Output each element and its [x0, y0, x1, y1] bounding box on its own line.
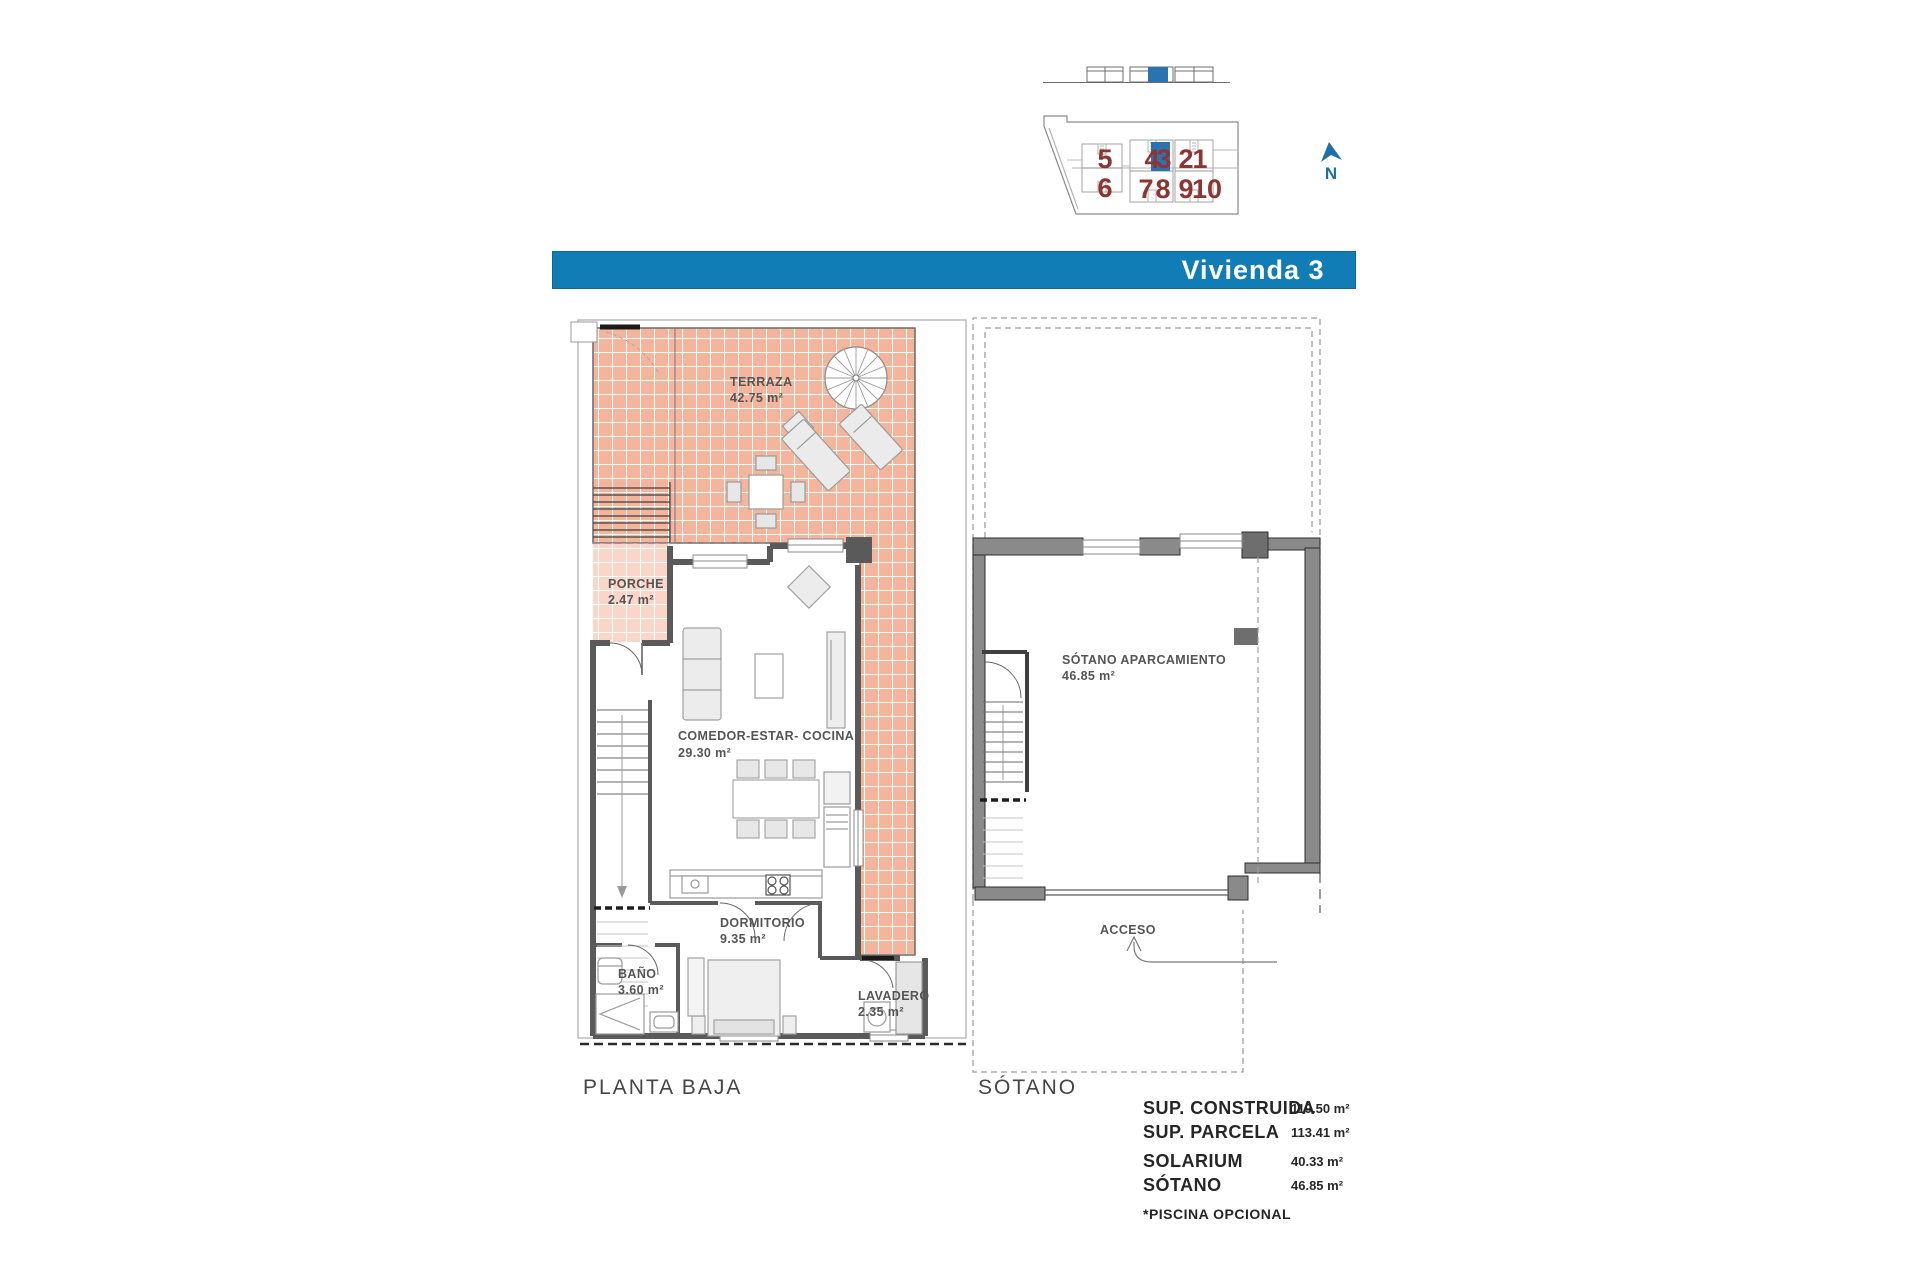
room-area-sotano-aparcamiento: 46.85 m²: [1062, 669, 1115, 683]
title-bar: Vivienda 3: [552, 251, 1356, 289]
room-area-dormitorio: 9.35 m²: [720, 932, 766, 946]
room-label-terraza: TERRAZA: [730, 375, 793, 389]
room-area-lavadero: 2.35 m²: [858, 1005, 904, 1019]
room-label-lavadero: LAVADERO: [858, 989, 930, 1003]
ground-floor-plan: TERRAZA 42.75 m² PORCHE 2.47 m² COMEDOR-…: [570, 310, 980, 1050]
site-plan: 5 6 4 3 2 1 7 8 9 10 N: [1030, 40, 1360, 220]
unit-number-5: 5: [1097, 144, 1112, 174]
floorplan-sheet: 5 6 4 3 2 1 7 8 9 10 N Vivienda 3: [0, 0, 1920, 1280]
north-arrow-icon: N: [1321, 142, 1342, 183]
garage-door: [1045, 890, 1228, 895]
access-arrow: [1127, 937, 1277, 962]
corner-pillar: [846, 537, 872, 563]
unit-number-2: 2: [1178, 144, 1193, 174]
access-label: ACCESO: [1100, 923, 1156, 937]
summary-row-sotano: SÓTANO 46.85 m²: [1143, 1175, 1463, 1197]
room-area-salon: 29.30 m²: [678, 746, 731, 760]
basement-plan: SÓTANO APARCAMIENTO 46.85 m² ACCESO: [960, 310, 1360, 1080]
room-label-porche: PORCHE: [608, 577, 664, 591]
summary-row-construida: SUP. CONSTRUIDA 119.50 m²: [1143, 1098, 1463, 1120]
unit-number-8: 8: [1155, 174, 1170, 204]
room-area-terraza: 42.75 m²: [730, 391, 783, 405]
basement-interior: [980, 550, 1313, 890]
room-label-salon: COMEDOR-ESTAR- COCINA: [678, 729, 854, 743]
spiral-staircase: [825, 347, 887, 409]
basement-pillar: [1234, 628, 1258, 645]
room-area-porche: 2.47 m²: [608, 593, 654, 607]
summary-value: 46.85 m²: [1291, 1178, 1343, 1193]
summary-value: 119.50 m²: [1291, 1101, 1350, 1116]
dining-set: [733, 760, 819, 838]
unit-number-6: 6: [1097, 173, 1112, 203]
summary-value: 40.33 m²: [1291, 1154, 1343, 1169]
summary-row-parcela: SUP. PARCELA 113.41 m²: [1143, 1122, 1463, 1144]
unit-number-3: 3: [1156, 144, 1171, 174]
elevation-highlight: [1148, 67, 1168, 82]
basement-caption: SÓTANO: [978, 1076, 1077, 1100]
room-label-sotano-aparcamiento: SÓTANO APARCAMIENTO: [1062, 652, 1226, 667]
north-label: N: [1325, 164, 1337, 183]
summary-note: *PISCINA OPCIONAL: [1143, 1206, 1291, 1222]
unit-number-10: 10: [1192, 174, 1222, 204]
ground-floor-caption: PLANTA BAJA: [583, 1076, 742, 1100]
summary-label: SUP. CONSTRUIDA: [1143, 1098, 1315, 1119]
summary-label: SÓTANO: [1143, 1175, 1222, 1196]
summary-label: SOLARIUM: [1143, 1151, 1243, 1172]
unit-number-1: 1: [1192, 144, 1207, 174]
room-area-bano: 3.60 m²: [618, 983, 664, 997]
room-label-dormitorio: DORMITORIO: [720, 916, 805, 930]
summary-label: SUP. PARCELA: [1143, 1122, 1279, 1143]
page-title: Vivienda 3: [1143, 252, 1363, 288]
elevation-strip: [1043, 67, 1230, 83]
summary-value: 113.41 m²: [1291, 1125, 1350, 1140]
summary-row-solarium: SOLARIUM 40.33 m²: [1143, 1151, 1463, 1173]
unit-number-7: 7: [1138, 174, 1153, 204]
room-label-bano: BAÑO: [618, 966, 656, 981]
